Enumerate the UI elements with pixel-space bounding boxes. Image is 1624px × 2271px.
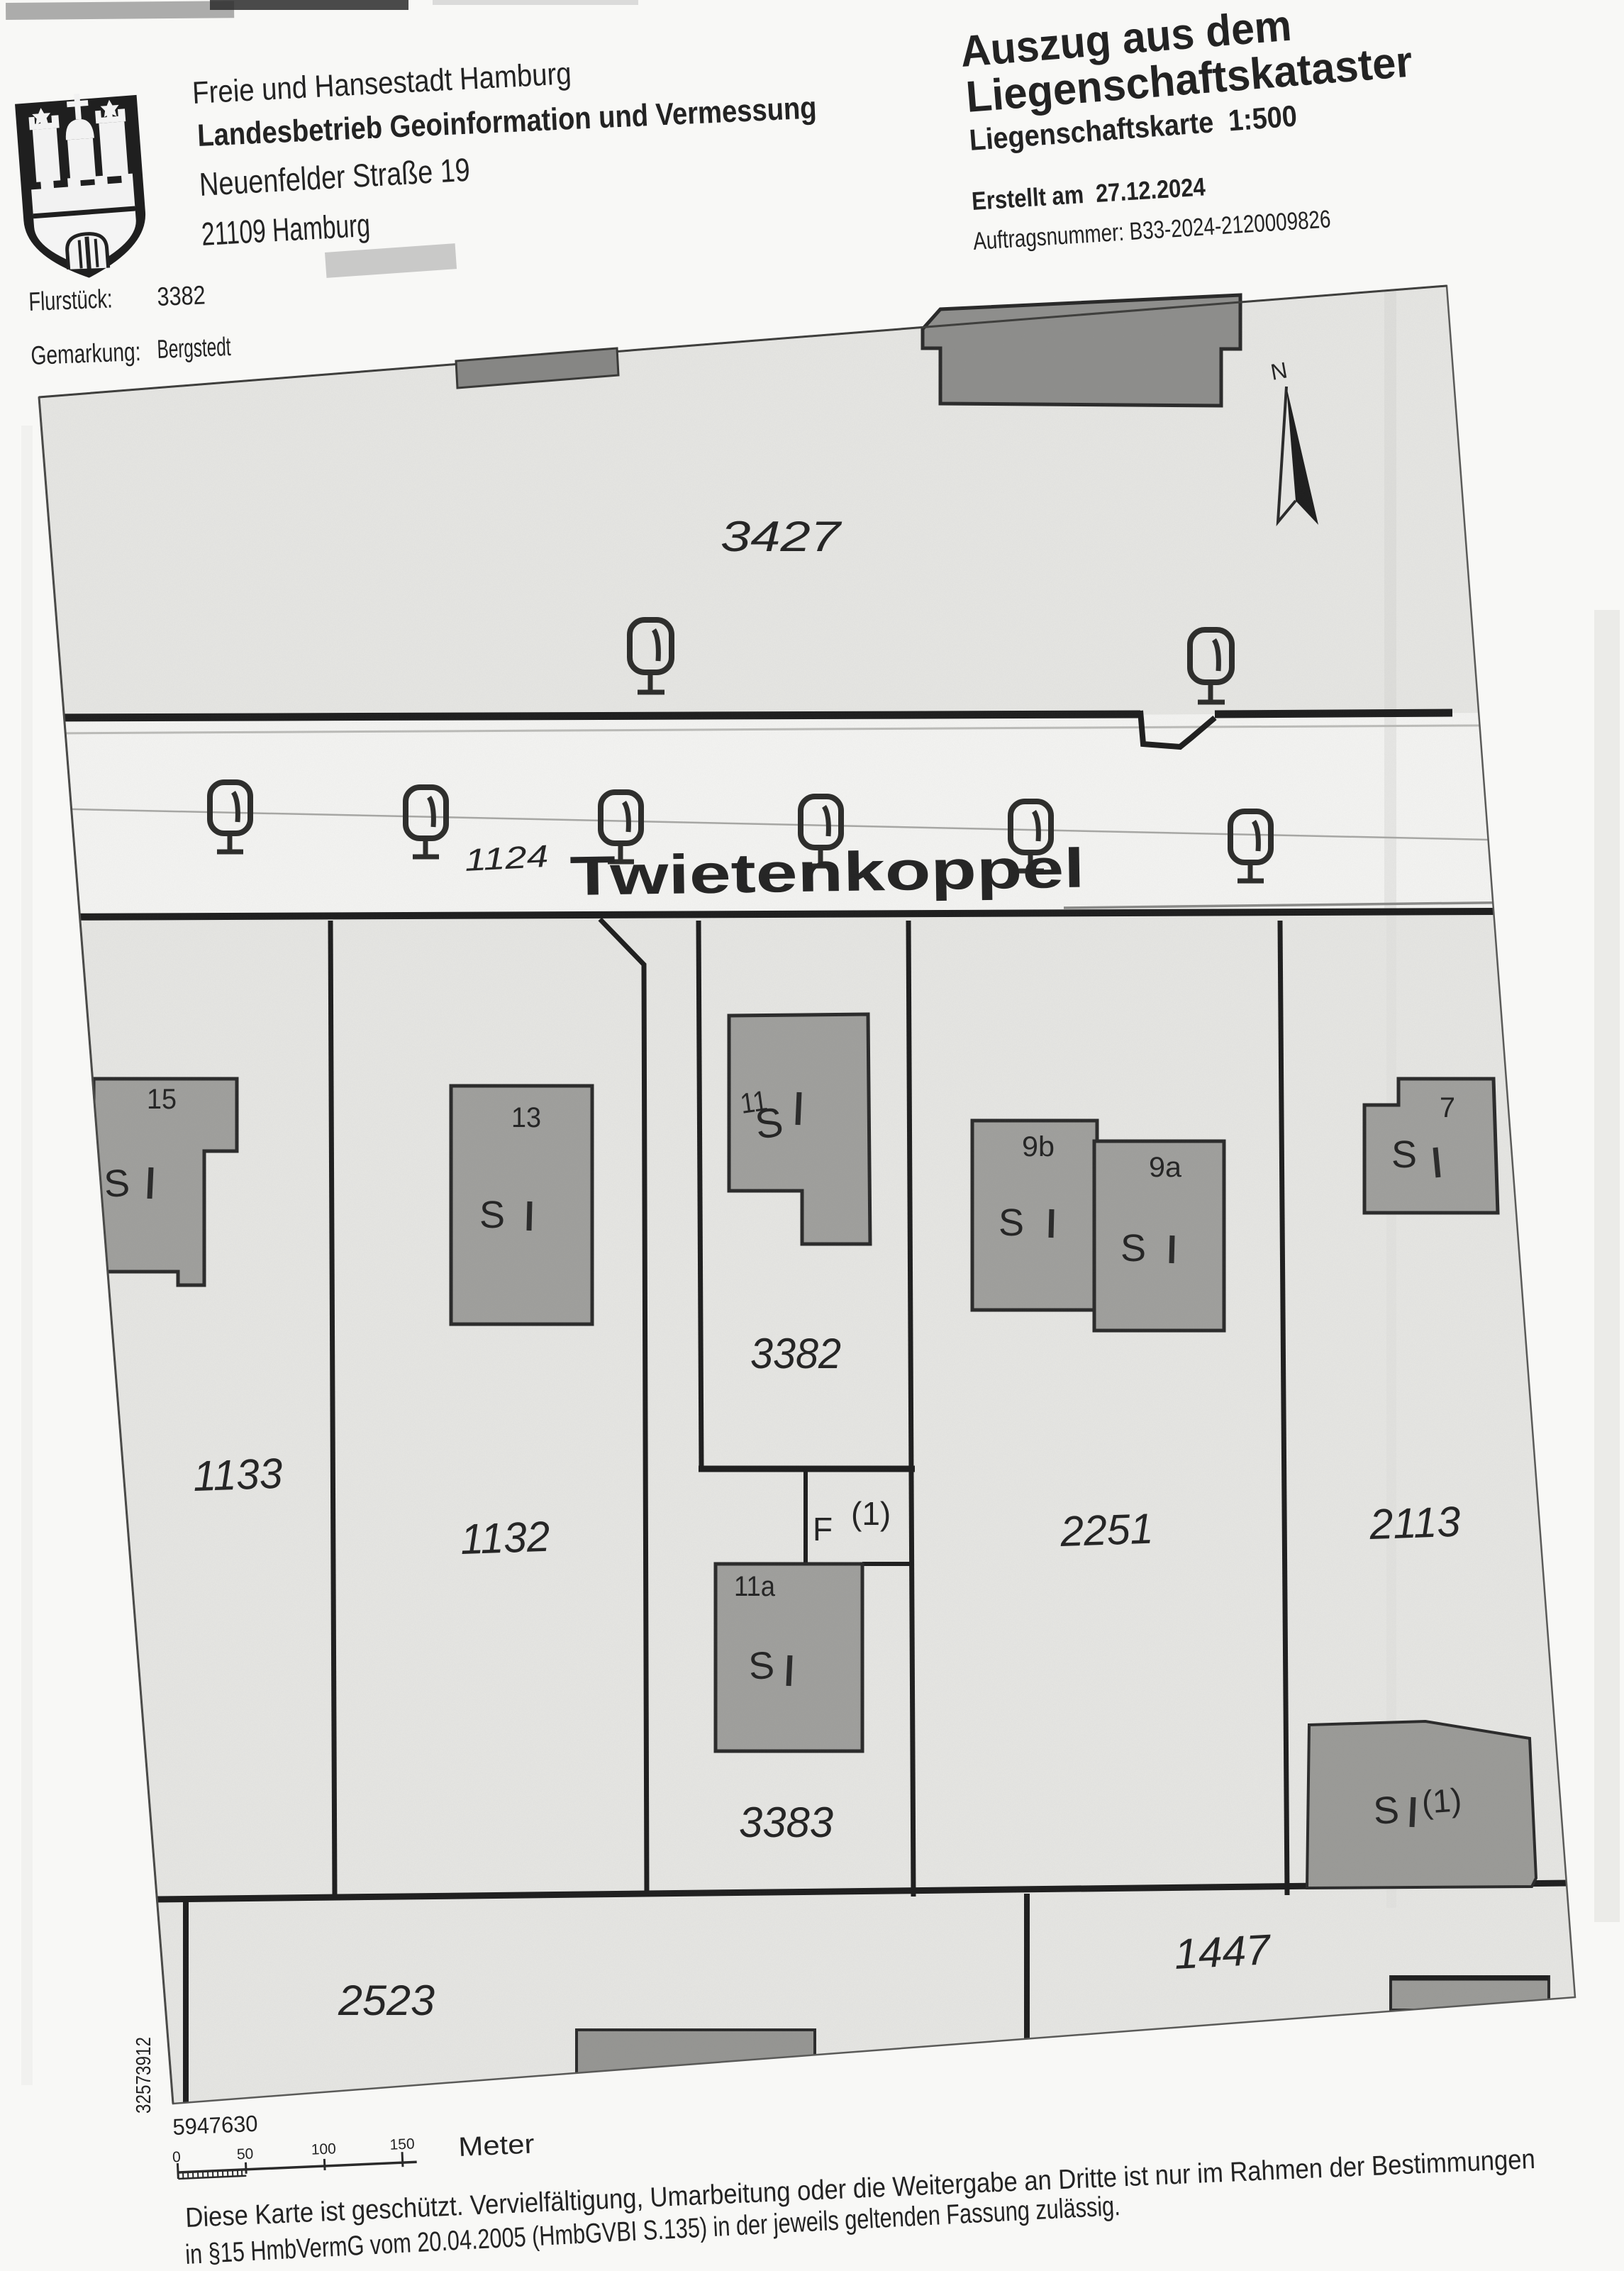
svg-text:150: 150 [389, 2136, 415, 2153]
svg-text:32573912: 32573912 [133, 2037, 155, 2114]
svg-text:50: 50 [236, 2145, 253, 2162]
svg-text:5947630: 5947630 [172, 2111, 258, 2140]
svg-text:Meter: Meter [458, 2129, 535, 2162]
svg-text:100: 100 [311, 2140, 336, 2158]
svg-text:Gemarkung:: Gemarkung: [30, 337, 141, 370]
svg-text:Flurstück:: Flurstück: [28, 284, 113, 316]
svg-text:3382: 3382 [157, 280, 206, 311]
svg-text:Bergstedt: Bergstedt [157, 332, 232, 364]
svg-text:0: 0 [172, 2149, 182, 2165]
